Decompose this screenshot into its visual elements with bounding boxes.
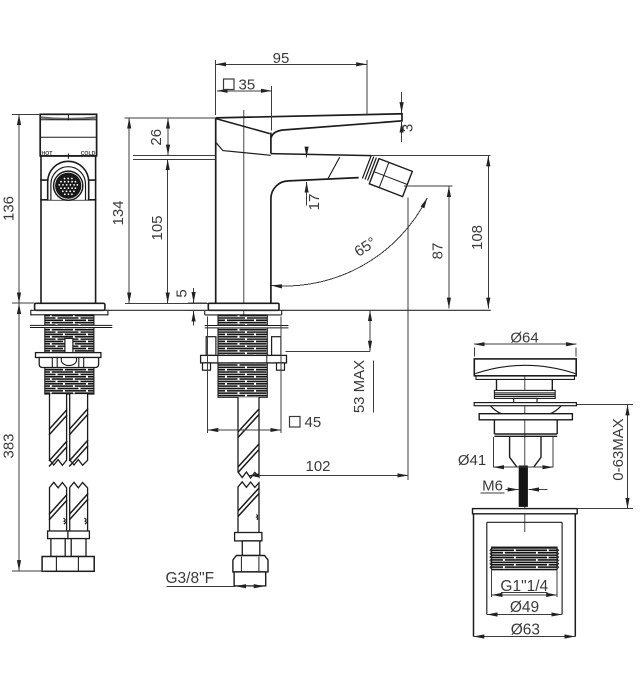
svg-text:65°: 65°	[351, 234, 379, 261]
svg-text:383: 383	[1, 433, 18, 458]
svg-text:35: 35	[239, 77, 256, 94]
svg-text:53 MAX: 53 MAX	[351, 360, 368, 413]
svg-text:0-63MAX: 0-63MAX	[610, 418, 627, 481]
svg-text:45: 45	[305, 414, 322, 431]
svg-text:134: 134	[110, 200, 127, 225]
svg-text:G1"1/4: G1"1/4	[500, 578, 548, 595]
svg-text:3: 3	[400, 124, 417, 132]
svg-text:95: 95	[273, 50, 290, 67]
svg-text:Ø64: Ø64	[510, 329, 538, 346]
svg-text:26: 26	[148, 129, 165, 146]
svg-text:Ø49: Ø49	[510, 599, 539, 616]
svg-text:17: 17	[306, 194, 323, 211]
svg-text:5: 5	[174, 289, 191, 297]
svg-text:102: 102	[305, 458, 330, 475]
svg-text:87: 87	[430, 243, 447, 260]
svg-text:M6: M6	[482, 478, 503, 495]
svg-text:Ø41: Ø41	[458, 452, 486, 469]
svg-text:108: 108	[469, 225, 486, 250]
svg-text:Ø63: Ø63	[511, 622, 540, 639]
svg-text:136: 136	[1, 196, 18, 221]
svg-text:105: 105	[149, 215, 166, 240]
svg-text:G3/8"F: G3/8"F	[166, 570, 215, 587]
